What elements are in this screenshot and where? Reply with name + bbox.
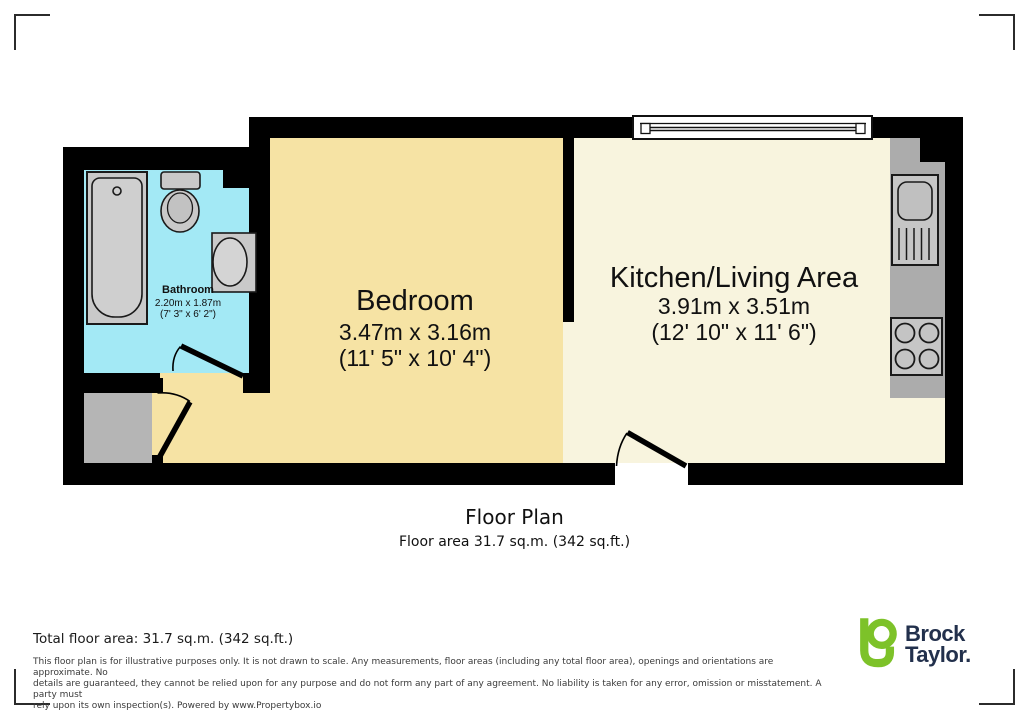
bathroom-label: Bathroom: [162, 284, 214, 296]
bathroom-doorway-threshold: [160, 373, 243, 393]
plan-title: Floor Plan: [0, 504, 1029, 530]
title-block: Floor Plan Floor area 31.7 sq.m. (342 sq…: [0, 504, 1029, 552]
disclaimer-line-3: rely upon its own inspection(s). Powered…: [33, 701, 823, 712]
disclaimer-line-1: This floor plan is for illustrative purp…: [33, 657, 823, 679]
kitchen-dimensions-metric: 3.91m x 3.51m: [658, 293, 810, 319]
floor-plan-drawing: Bathroom 2.20m x 1.87m (7' 3" x 6' 2") B…: [0, 0, 1029, 560]
kitchen-dimensions-imperial: (12' 10" x 11' 6"): [651, 319, 816, 345]
brand-name-line2: Taylor.: [905, 644, 971, 665]
bedroom-dimensions-metric: 3.47m x 3.16m: [339, 319, 491, 345]
total-floor-area: Total floor area: 31.7 sq.m. (342 sq.ft.…: [33, 631, 293, 647]
floor-plan-page: Bathroom 2.20m x 1.87m (7' 3" x 6' 2") B…: [0, 0, 1029, 720]
entrance-hall-floor: [84, 383, 152, 463]
corner-mark-bottom-right: [979, 669, 1015, 705]
plan-subtitle: Floor area 31.7 sq.m. (342 sq.ft.): [0, 532, 1029, 552]
toilet-icon: [161, 172, 200, 232]
kitchen-sink-icon: [892, 175, 938, 265]
disclaimer-text: This floor plan is for illustrative purp…: [33, 657, 823, 712]
bathroom-dimensions-metric: 2.20m x 1.87m: [155, 298, 221, 309]
bedroom-dimensions-imperial: (11' 5" x 10' 4"): [339, 345, 492, 371]
bedroom-floor-extension: [152, 392, 270, 463]
kitchen-living-label: Kitchen/Living Area: [610, 262, 859, 294]
brock-taylor-logo: Brock Taylor.: [856, 616, 971, 670]
logo-b-icon: [856, 616, 900, 670]
bathroom-sink-icon: [212, 233, 256, 292]
brand-name-line1: Brock: [905, 623, 971, 644]
bathroom-dimensions-imperial: (7' 3" x 6' 2"): [160, 309, 216, 320]
hob-icon: [891, 318, 942, 375]
bedroom-label: Bedroom: [356, 285, 474, 317]
brand-name: Brock Taylor.: [905, 623, 971, 665]
window: [633, 116, 872, 139]
disclaimer-line-2: details are guaranteed, they cannot be r…: [33, 679, 823, 701]
bathtub-icon: [87, 172, 147, 324]
